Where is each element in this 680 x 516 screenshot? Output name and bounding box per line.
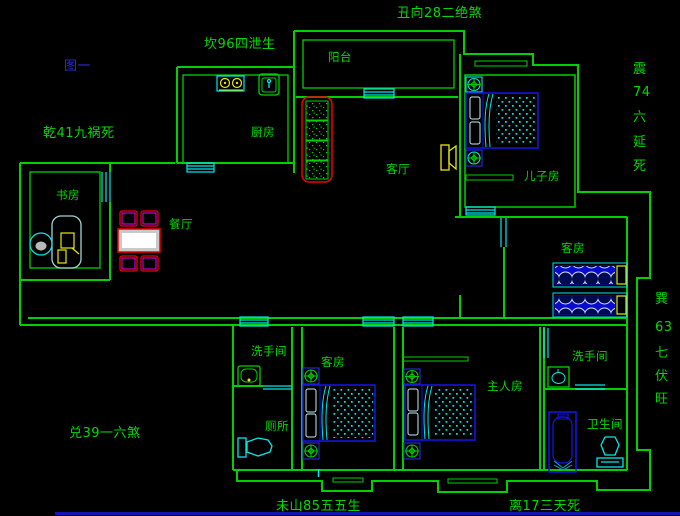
label-balcony: 阳台 xyxy=(328,50,352,64)
son-shelf-inner xyxy=(466,175,513,180)
label-kitchen: 厨房 xyxy=(251,125,275,139)
svg-text:巽: 巽 xyxy=(655,292,669,307)
bed-master xyxy=(405,385,475,440)
master-shelf xyxy=(403,357,468,361)
stove xyxy=(217,76,244,91)
annotation-xun: 巽 63 七 伏 旺 xyxy=(655,292,673,407)
entry-mat-2 xyxy=(448,479,497,483)
kitchen-walls xyxy=(177,31,294,173)
label-guest-room-upper: 客房 xyxy=(561,241,585,255)
dining-set xyxy=(118,211,160,271)
door-toilet-divider xyxy=(263,386,292,389)
lamp-master-top xyxy=(404,369,420,384)
sofa xyxy=(302,97,332,182)
annotation-zhen: 震 74 六 延 死 xyxy=(633,62,651,174)
door-bathroom-divider xyxy=(575,385,605,389)
label-washroom-right: 洗手间 xyxy=(572,349,608,363)
annotation-qian: 乾41九祸死 xyxy=(43,126,115,141)
long-wall xyxy=(20,318,627,325)
annotation-kan: 坎96四泄生 xyxy=(204,37,276,52)
label-living-room: 客厅 xyxy=(386,162,410,176)
bottom-room-walls xyxy=(233,325,627,470)
label-study: 书房 xyxy=(56,188,80,202)
tv-speaker xyxy=(441,145,456,170)
study-inner xyxy=(30,172,100,268)
window-kitchen xyxy=(187,163,214,172)
lamp-son-bottom xyxy=(466,150,482,166)
annotation-wei: 未山85五五生 xyxy=(276,499,361,514)
svg-text:六: 六 xyxy=(633,110,647,125)
single-bed-2 xyxy=(553,293,627,317)
bed-son xyxy=(466,93,538,148)
bathtub xyxy=(549,412,576,472)
annotation-dui: 兑39一六煞 xyxy=(69,426,141,441)
sink-washroom-left xyxy=(238,366,260,386)
kitchen-sink xyxy=(259,74,279,95)
balcony-inner xyxy=(303,40,454,88)
lamp-guest-bottom xyxy=(303,443,319,459)
toilet-bathroom xyxy=(597,437,623,467)
label-toilet: 厕所 xyxy=(265,419,289,433)
label-dining: 餐厅 xyxy=(169,217,193,231)
son-shelf-top xyxy=(475,61,527,66)
label-bathroom: 卫生间 xyxy=(587,417,623,431)
label-guest-room-lower: 客房 xyxy=(321,355,345,369)
door-study xyxy=(102,172,110,202)
kitchen-inner xyxy=(183,75,288,163)
svg-text:旺: 旺 xyxy=(655,392,669,407)
figure-label: 图一 xyxy=(64,59,91,74)
lamp-master-bottom xyxy=(404,443,420,459)
svg-text:震: 震 xyxy=(633,62,647,77)
window-son-room xyxy=(466,207,495,215)
annotation-li: 离17三天死 xyxy=(509,498,581,514)
door-guest-upper xyxy=(501,218,506,247)
svg-text:63: 63 xyxy=(655,320,673,335)
annotation-chou: 丑向28二绝煞 xyxy=(397,5,482,21)
statusbar-edge xyxy=(55,512,680,515)
lamp-son-top xyxy=(466,77,482,92)
bed-guest-lower xyxy=(303,385,375,441)
cad-viewport[interactable]: 丑向28二绝煞 坎96四泄生 图一 乾41九祸死 兑39一六煞 未山85五五生 … xyxy=(0,0,680,516)
svg-text:伏: 伏 xyxy=(655,369,669,384)
entry-mat-1 xyxy=(333,478,363,482)
svg-text:延: 延 xyxy=(633,135,647,150)
label-washroom-left: 洗手间 xyxy=(251,344,287,358)
svg-text:死: 死 xyxy=(633,159,647,174)
svg-text:74: 74 xyxy=(633,85,651,100)
label-master-room: 主人房 xyxy=(487,379,523,393)
toilet-left xyxy=(238,438,272,457)
sink-washroom-right xyxy=(548,367,569,387)
lamp-guest-top xyxy=(303,368,319,384)
door-master xyxy=(544,328,548,358)
study-desk xyxy=(30,216,81,268)
study-walls xyxy=(20,163,175,280)
svg-text:七: 七 xyxy=(655,346,669,361)
label-son-room: 儿子房 xyxy=(524,169,560,183)
floorplan-canvas[interactable]: 丑向28二绝煞 坎96四泄生 图一 乾41九祸死 兑39一六煞 未山85五五生 … xyxy=(0,0,680,516)
single-bed-1 xyxy=(553,263,627,287)
